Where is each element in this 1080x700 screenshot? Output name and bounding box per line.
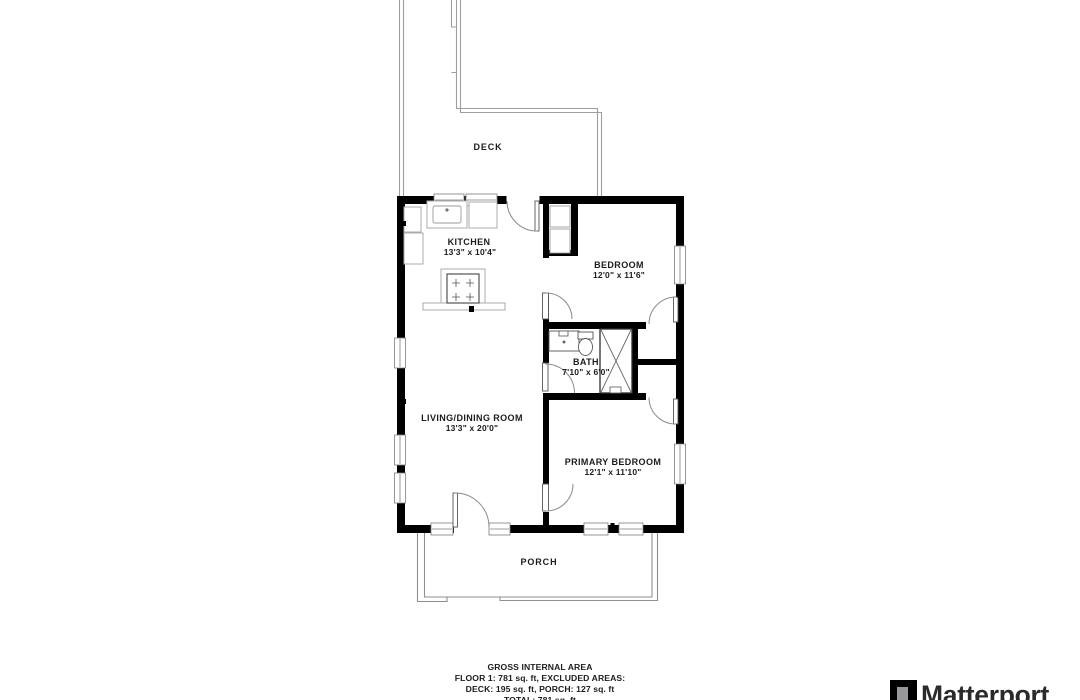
door-swing-icon: [453, 493, 489, 527]
deck-label: DECK: [473, 142, 502, 152]
porch-label: PORCH: [520, 557, 557, 567]
door-swing-icon: [507, 201, 539, 231]
matterport-logo-text: Matterport: [921, 680, 1050, 700]
window-icon: [619, 523, 643, 535]
window-icon: [489, 523, 510, 535]
shower-icon: [600, 329, 632, 393]
door-swing-icon: [543, 293, 573, 319]
window-icon: [675, 444, 686, 484]
closet-shelves: [550, 206, 570, 253]
window-icon: [395, 338, 406, 368]
room-dims-bath: 7'10" x 6'0": [562, 367, 610, 377]
floor-plan: DECK PORCH KITCHEN 13'3" x 10'4" BEDROOM…: [0, 0, 1080, 700]
room-dims-kitchen: 13'3" x 10'4": [444, 247, 497, 257]
window-icon: [395, 435, 406, 465]
window-icon: [431, 523, 453, 535]
summary-floor: FLOOR 1: 781 sq. ft, EXCLUDED AREAS:: [455, 673, 625, 683]
room-label-bath: BATH: [573, 357, 599, 367]
stove-icon: [447, 274, 479, 303]
floor-plan-page: DECK PORCH KITCHEN 13'3" x 10'4" BEDROOM…: [0, 0, 1080, 700]
room-label-kitchen: KITCHEN: [448, 237, 491, 247]
deck-outline: [400, 0, 602, 196]
door-swing-icon: [649, 398, 678, 425]
matterport-logo-icon: [890, 680, 917, 700]
branding: Matterport: [890, 680, 1050, 700]
window-icon: [675, 246, 686, 284]
porch-outline: [418, 533, 658, 602]
kitchen-sink-icon: [433, 206, 461, 223]
room-label-bedroom: BEDROOM: [594, 260, 644, 270]
room-label-living-dining: LIVING/DINING ROOM: [421, 413, 523, 423]
summary-total: TOTAL: 781 sq. ft: [504, 695, 576, 700]
room-label-primary-bedroom: PRIMARY BEDROOM: [565, 457, 662, 467]
door-swing-icon: [649, 297, 678, 324]
area-summary: GROSS INTERNAL AREA FLOOR 1: 781 sq. ft,…: [455, 662, 625, 700]
room-dims-primary-bedroom: 12'1" x 11'10": [585, 467, 642, 477]
summary-excluded: DECK: 195 sq. ft, PORCH: 127 sq. ft: [466, 684, 615, 694]
room-dims-living-dining: 13'3" x 20'0": [446, 423, 499, 433]
window-icon: [395, 473, 406, 503]
toilet-icon: [578, 332, 593, 356]
window-icon: [584, 523, 608, 535]
summary-title: GROSS INTERNAL AREA: [487, 662, 592, 672]
vanity-sink-icon: [549, 331, 579, 351]
room-dims-bedroom: 12'0" x 11'6": [593, 270, 645, 280]
door-swing-icon: [543, 484, 574, 511]
